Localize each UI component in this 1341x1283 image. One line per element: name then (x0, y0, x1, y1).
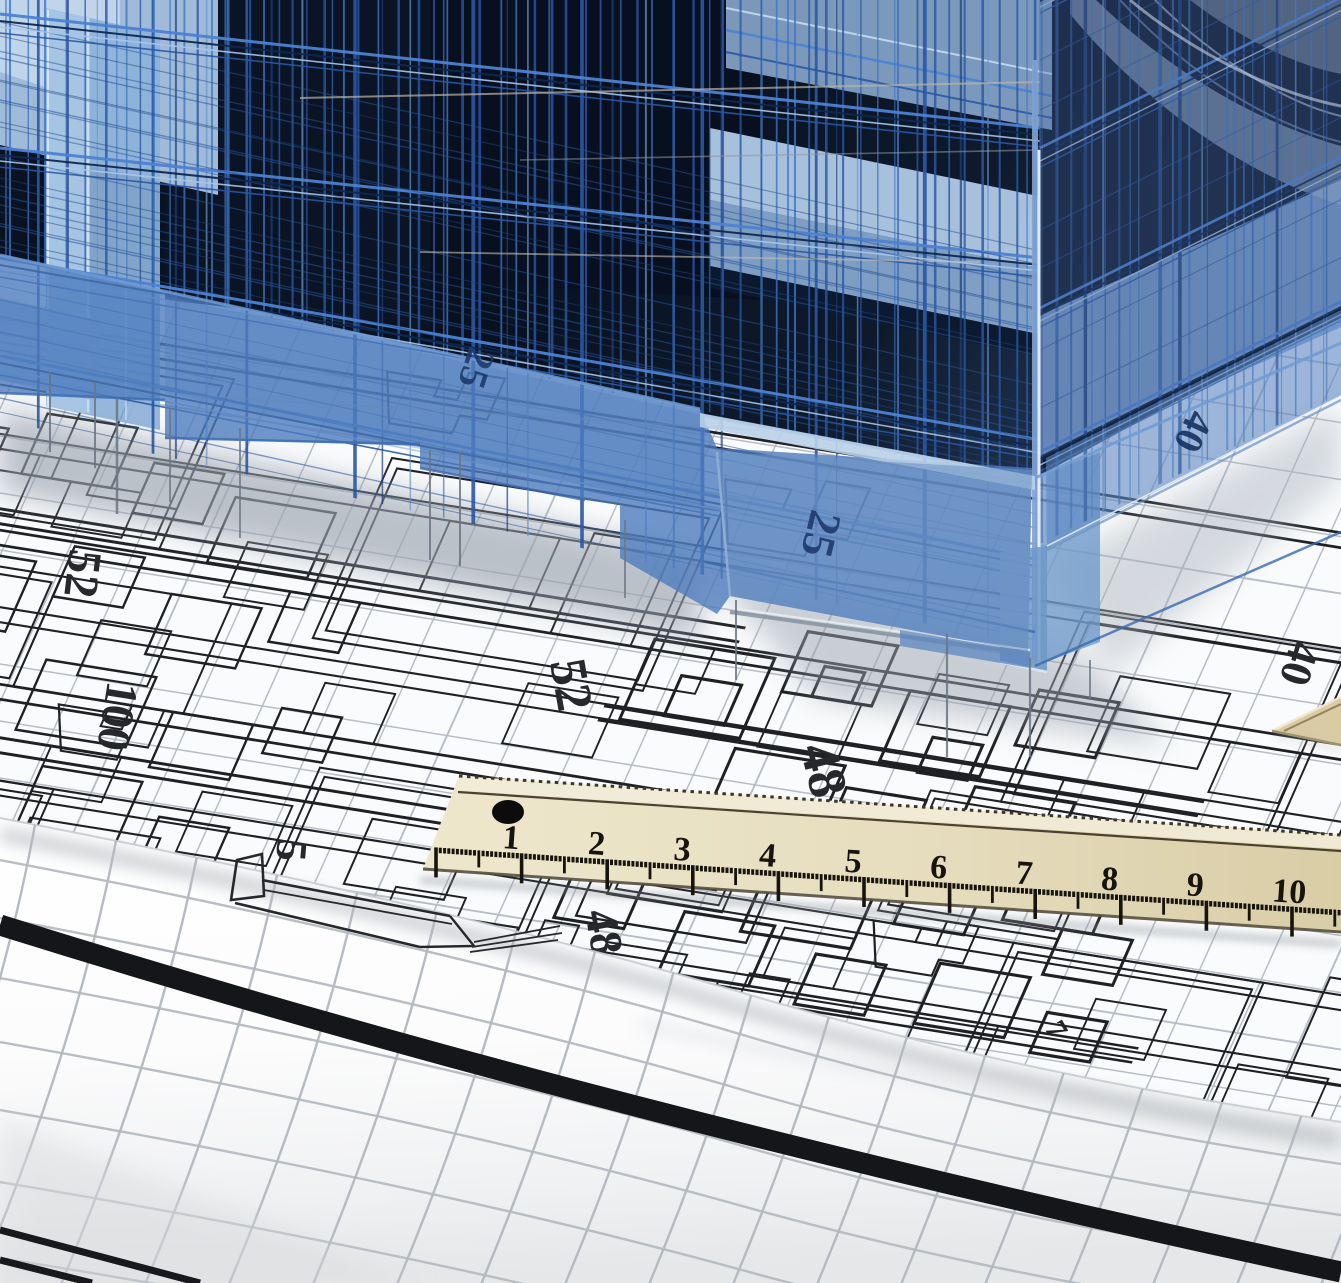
svg-text:3: 3 (672, 831, 692, 869)
svg-text:8: 8 (1100, 860, 1120, 898)
svg-text:4: 4 (758, 837, 778, 875)
svg-text:52: 52 (538, 654, 603, 715)
svg-text:5: 5 (266, 837, 317, 863)
svg-text:2: 2 (587, 825, 607, 863)
svg-text:10: 10 (1271, 872, 1307, 911)
svg-text:5: 5 (843, 843, 863, 881)
svg-text:9: 9 (1185, 866, 1205, 904)
svg-text:52: 52 (53, 547, 111, 601)
svg-text:6: 6 (929, 849, 949, 887)
svg-text:1: 1 (501, 819, 521, 857)
svg-text:7: 7 (1014, 855, 1034, 893)
svg-text:100: 100 (87, 678, 148, 754)
